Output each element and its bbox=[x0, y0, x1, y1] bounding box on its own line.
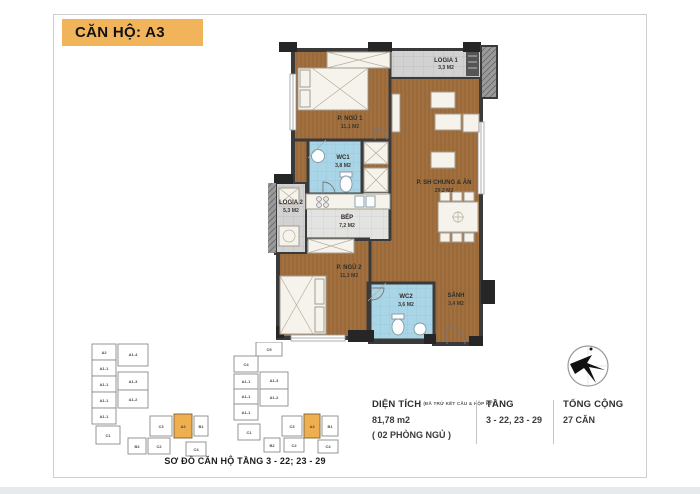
svg-text:C4: C4 bbox=[243, 362, 249, 367]
info-divider-2 bbox=[553, 400, 554, 444]
area-label: DIỆN TÍCH bbox=[372, 399, 421, 410]
svg-text:3,3 M2: 3,3 M2 bbox=[438, 65, 454, 71]
compass-icon bbox=[565, 343, 611, 389]
svg-text:A1-2: A1-2 bbox=[270, 395, 279, 400]
info-divider-1 bbox=[476, 400, 477, 444]
wc1-sink bbox=[312, 150, 325, 163]
area-note: (ĐÃ TRỪ KẾT CẤU & HỘP KT) bbox=[423, 401, 494, 406]
exterior-wall-hatch bbox=[268, 183, 276, 253]
svg-text:11,3 M2: 11,3 M2 bbox=[340, 273, 359, 279]
info-col-total: TỔNG CỘNG 27 CĂN bbox=[563, 399, 623, 425]
svg-text:A1-1: A1-1 bbox=[100, 414, 109, 419]
svg-text:A1-3: A1-3 bbox=[129, 379, 138, 384]
label-hall: SẢNH bbox=[447, 292, 464, 299]
svg-text:C1: C1 bbox=[246, 430, 252, 435]
label-logia2: LOGIA 2 bbox=[279, 200, 303, 206]
svg-text:A1-1: A1-1 bbox=[100, 366, 109, 371]
label-wc1: WC1 bbox=[336, 155, 350, 161]
svg-text:A3: A3 bbox=[309, 424, 315, 429]
floor-label: TẦNG bbox=[486, 399, 542, 410]
page-bottom-edge bbox=[0, 487, 700, 494]
floorplan-drawing: P. NGỦ 1 11,1 M2 LOGIA 1 3,3 M2 P. SH CH… bbox=[263, 36, 507, 350]
washing-machine bbox=[279, 226, 299, 246]
svg-text:A3: A3 bbox=[180, 424, 186, 429]
svg-text:C2: C2 bbox=[291, 443, 297, 448]
ac-unit bbox=[466, 52, 479, 76]
svg-text:C1: C1 bbox=[105, 433, 111, 438]
technical-shaft bbox=[481, 46, 497, 98]
tv-sideboard bbox=[392, 94, 400, 132]
svg-text:B1: B1 bbox=[327, 424, 333, 429]
svg-text:A1-2: A1-2 bbox=[129, 397, 138, 402]
svg-text:B2: B2 bbox=[269, 443, 275, 448]
svg-text:A2: A2 bbox=[101, 350, 107, 355]
page-title: CĂN HỘ: A3 bbox=[62, 19, 203, 46]
svg-text:5,3 M2: 5,3 M2 bbox=[283, 208, 299, 214]
svg-text:A1-1: A1-1 bbox=[242, 379, 251, 384]
floorplan-page: CĂN HỘ: A3 bbox=[0, 0, 700, 494]
svg-text:C3: C3 bbox=[289, 424, 295, 429]
wc2-toilet bbox=[392, 319, 404, 335]
svg-text:29,2 M2: 29,2 M2 bbox=[435, 188, 454, 194]
svg-text:3,8 M2: 3,8 M2 bbox=[335, 163, 351, 169]
keyplan-floors-3-22: A2 A1-4 A1-1 A1-1 A1-3 A1-1 A1-2 A1-1 C1… bbox=[82, 342, 210, 468]
svg-text:C2: C2 bbox=[156, 444, 162, 449]
svg-text:A1-1: A1-1 bbox=[100, 398, 109, 403]
svg-text:C4: C4 bbox=[325, 444, 331, 449]
svg-text:B1: B1 bbox=[198, 424, 204, 429]
svg-text:7,2 M2: 7,2 M2 bbox=[339, 223, 355, 229]
label-bedroom2: P. NGỦ 2 bbox=[337, 264, 363, 271]
svg-text:B2: B2 bbox=[134, 444, 140, 449]
keyplan-floors-23-29: C5 C4 A1-1 A1-3 A1-1 A1-2 A1-1 C1 C3 A3 … bbox=[226, 342, 344, 468]
wc1-toilet bbox=[340, 176, 352, 192]
keyplan-caption: SƠ ĐỒ CĂN HỘ TẦNG 3 - 22; 23 - 29 bbox=[95, 456, 395, 466]
svg-text:A1-1: A1-1 bbox=[242, 394, 251, 399]
total-label: TỔNG CỘNG bbox=[563, 399, 623, 410]
label-kitchen: BẾP bbox=[341, 214, 353, 221]
svg-text:3,4 M2: 3,4 M2 bbox=[448, 301, 464, 307]
label-living: P. SH CHUNG & ĂN bbox=[417, 179, 472, 186]
svg-text:A1-1: A1-1 bbox=[100, 382, 109, 387]
svg-text:C3: C3 bbox=[158, 424, 164, 429]
sofa bbox=[431, 92, 455, 108]
total-value: 27 CĂN bbox=[563, 415, 623, 425]
svg-text:C5: C5 bbox=[266, 347, 272, 352]
apartment-floorplan: P. NGỦ 1 11,1 M2 LOGIA 1 3,3 M2 P. SH CH… bbox=[263, 36, 507, 350]
svg-text:A1-3: A1-3 bbox=[270, 378, 279, 383]
svg-text:C4: C4 bbox=[193, 447, 199, 452]
floor-value: 3 - 22, 23 - 29 bbox=[486, 415, 542, 425]
wc2-sink bbox=[414, 323, 426, 335]
svg-text:A1-1: A1-1 bbox=[242, 410, 251, 415]
info-col-floor: TẦNG 3 - 22, 23 - 29 bbox=[486, 399, 542, 425]
label-bedroom1: P. NGỦ 1 bbox=[338, 115, 364, 122]
svg-text:11,1 M2: 11,1 M2 bbox=[341, 124, 360, 130]
kitchen-sink bbox=[355, 196, 364, 207]
label-logia1: LOGIA 1 bbox=[434, 58, 458, 64]
page-title-label: CĂN HỘ: A3 bbox=[62, 19, 203, 46]
label-wc2: WC2 bbox=[399, 294, 413, 300]
svg-text:A1-4: A1-4 bbox=[129, 352, 138, 357]
svg-text:3,6 M2: 3,6 M2 bbox=[398, 302, 414, 308]
